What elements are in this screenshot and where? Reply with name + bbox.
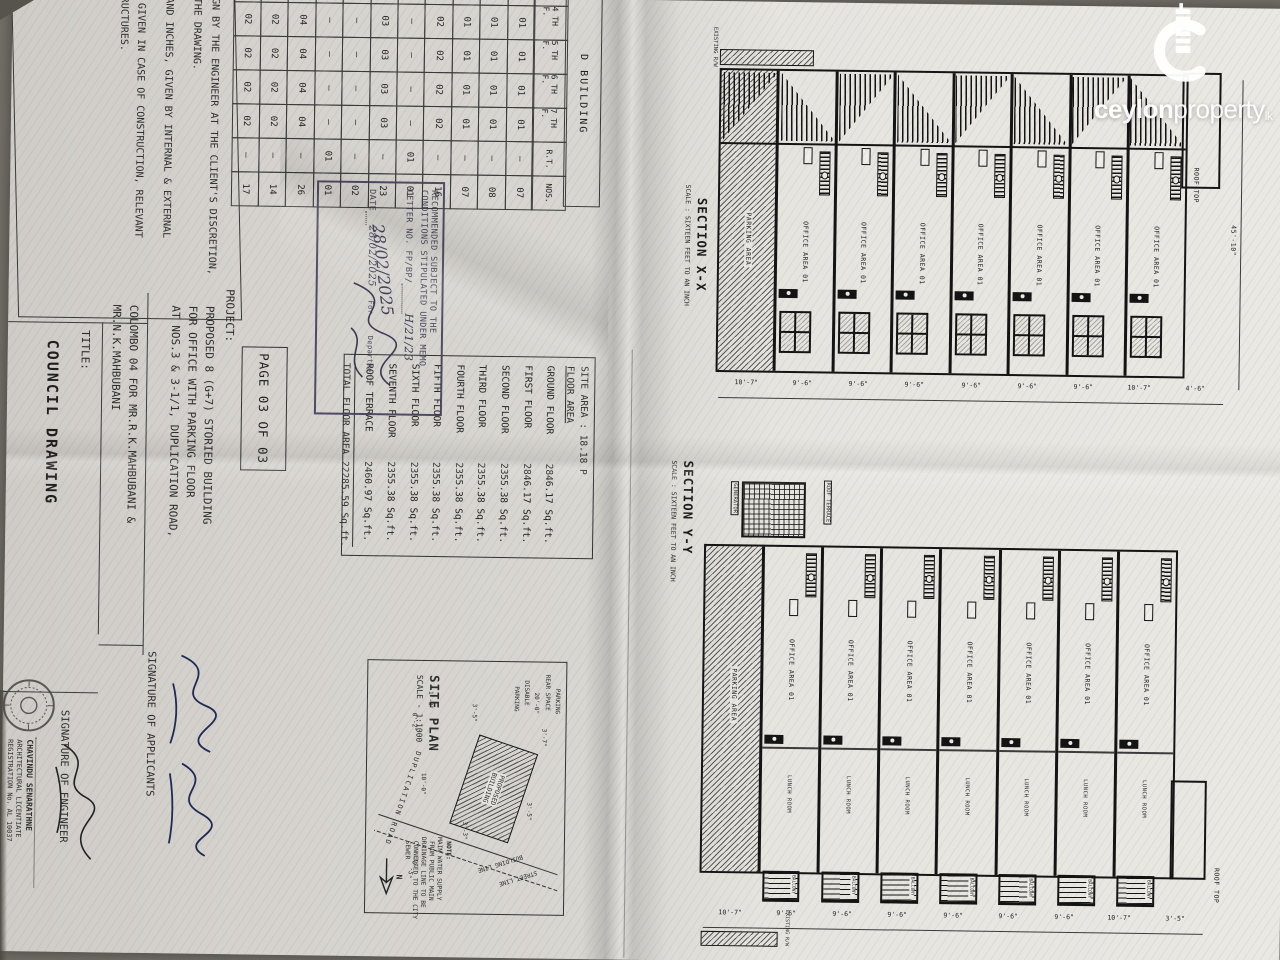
office-area-label: OFFICE AREA 01 (918, 223, 927, 285)
table-cell: 01 (478, 73, 507, 108)
louver-window-icon (865, 554, 877, 598)
note-line: N THE DRAWING. (191, 0, 203, 70)
louver-window-icon (806, 553, 818, 597)
dim-label: 9'-6" (791, 355, 814, 411)
parking-floor-band: PARKING AREA (702, 546, 763, 872)
disable-label: DISABLE (523, 680, 530, 705)
office-area-label: OFFICE AREA 01 (1152, 226, 1161, 288)
table-cell: 01 (505, 107, 534, 142)
table-cell: 2355.38 Sq.ft. (384, 461, 396, 547)
engineer-signature-icon (47, 737, 105, 868)
date-label: DATE (367, 189, 377, 211)
office-area-label: OFFICE AREA 01 (965, 641, 974, 703)
note-line: DRAINAGE LINE TO BE (419, 837, 427, 908)
table-cell: 03 (368, 105, 397, 140)
table-cell: – (368, 139, 397, 174)
table-cell: – (314, 104, 343, 139)
table-cell: 6 TH F. (532, 73, 567, 108)
dim-label: 9'-6" (942, 887, 965, 943)
existing-wall (701, 931, 778, 947)
table-cell: 01 (451, 38, 480, 73)
table-row: 0303030303–23 (367, 0, 398, 208)
section-xx-title: SECTION X-X (694, 198, 710, 292)
dim-label: 9'-6" (886, 887, 909, 943)
dim-label: 9'-6" (847, 356, 870, 412)
balcony-label: BALCONY (1145, 879, 1150, 900)
table-cell: – (396, 71, 425, 106)
office-floor-band: OFFICE AREA 01 LUNCH ROOM BALCONY (1112, 552, 1176, 878)
drawing-sheet: 45'-10" ROOF TOP OFFICE AREA 01 (0, 0, 1280, 960)
louver-window-icon (1170, 156, 1182, 200)
partition-wall (1058, 751, 1114, 754)
table-cell: 04 (286, 104, 315, 139)
window-icon (896, 312, 929, 354)
section-yy-building: OFFICE AREA 01 LUNCH ROOM BALCONY OFFICE… (700, 544, 1179, 880)
louver-window-icon (1160, 558, 1172, 602)
table-cell: 2846.17 Sq.ft. (520, 463, 532, 549)
table-cell: 01 (506, 39, 535, 74)
table-cell: – (258, 138, 287, 173)
table-cell: 03 (370, 3, 399, 38)
table-cell: 07 (450, 174, 479, 209)
table-cell: 2355.38 Sq.ft. (474, 463, 486, 549)
note-line: MAIN WATER SUPPLY (435, 837, 443, 900)
table-row: 3 RD F.4 TH F.5 TH F.6 TH F.7 TH F.R.T.N… (531, 0, 568, 211)
door-icon (1130, 294, 1149, 303)
window-icon (779, 311, 812, 353)
dim-label: 9'-6" (1053, 889, 1076, 945)
engineer-signature-label: SIGNATURE OF ENGINEER (57, 710, 71, 843)
office-area-label: OFFICE AREA 01 (976, 224, 985, 286)
stamp-signature-icon (332, 273, 414, 394)
table-cell: – (423, 140, 452, 175)
door-icon (883, 736, 902, 745)
door-icon (896, 290, 915, 299)
dim-label: 9'-6" (997, 888, 1020, 944)
table-cell: 01 (452, 4, 481, 39)
building-table-header: 3 RD F.4 TH F.5 TH F.6 TH F.7 TH F.R.T.N… (531, 0, 568, 211)
table-cell: 2355.38 Sq.ft. (429, 462, 441, 548)
parking-area-label: PARKING AREA (744, 210, 753, 267)
window-icon (1013, 314, 1046, 356)
door-icon (779, 289, 798, 298)
floor-bands: OFFICE AREA 01 LUNCH ROOM BALCONY OFFICE… (702, 546, 1176, 878)
dim-label: 10'-7" (1108, 890, 1131, 946)
balcony-label: BALCONY (968, 877, 973, 898)
dim-label: 10'-7" (735, 354, 758, 410)
engineer-name: CHAVINDU SENARATHNE (24, 739, 34, 831)
building-table-title: D BUILDING (577, 0, 590, 134)
applicants-signature-label: SIGNATURE OF APPLICANTS (144, 651, 158, 797)
page-strip: PAGE 03 OF 03 (240, 346, 288, 471)
office-floor-band: OFFICE AREA 01 LUNCH ROOM BALCONY (817, 547, 881, 873)
lunch-room-label: LUNCH ROOM (1081, 779, 1088, 817)
table-cell: – (341, 139, 370, 174)
floor-level-tag (1037, 150, 1046, 167)
floor-level-tag (789, 599, 798, 616)
table-cell: 26 (285, 172, 314, 207)
roof-bulkhead (1169, 780, 1206, 879)
table-cell: 2355.38 Sq.ft. (497, 463, 509, 549)
lunch-room-label: LUNCH ROOM (1140, 780, 1147, 818)
floor-area-heading: FLOOR AREA (562, 366, 576, 550)
generator-label: GENERATOR (731, 481, 739, 515)
floor-level-tag (1085, 603, 1094, 620)
engineer-registration: REGISTRATION No. AL 10037 (5, 739, 14, 841)
office-area-label: OFFICE AREA 01 (801, 221, 810, 283)
dim-label: 4'-6" (1184, 360, 1207, 416)
table-cell: 02 (259, 70, 288, 105)
office-area-label: OFFICE AREA 01 (846, 640, 855, 702)
door-icon (1072, 293, 1091, 302)
louver-window-icon (1111, 155, 1123, 199)
divider (98, 322, 103, 634)
table-row: 0202020202–16 (422, 0, 453, 209)
louver-window-icon (924, 555, 936, 599)
office-floor-band: OFFICE AREA 01 LUNCH ROOM BALCONY (935, 549, 999, 875)
lunch-room-label: LUNCH ROOM (963, 777, 970, 815)
table-cell: 02 (233, 1, 262, 36)
note-line: SEWER (404, 841, 411, 860)
divider (99, 644, 144, 646)
table-cell: SECOND FLOOR (498, 365, 510, 463)
note-line: FROM PUBLIC MAIN (427, 841, 435, 901)
table-cell: 04 (287, 70, 316, 105)
stair-flight-icon (721, 70, 780, 143)
yy-dimension-column: 3'-5" 10'-7" 9'-6" 9'-6" 9'-6" 9'-6" 9'-… (703, 901, 1203, 930)
table-cell: 2846.17 Sq.ft. (542, 464, 554, 550)
partition-wall (881, 748, 937, 751)
dim: 3'-7" (540, 729, 547, 747)
disable-parking-dim: 20'-0" (533, 692, 540, 714)
window-icon (838, 312, 871, 354)
xx-dimension-column: 4'-6" 10'-7" 9'-6" 9'-6" 9'-6" 9'-6" 9'-… (718, 371, 1223, 400)
floor-level-tag (862, 148, 871, 165)
project-line: MR.N.K.MAHBUBANI (109, 305, 123, 411)
table-cell: – (286, 138, 315, 173)
floor-level-tag (1096, 151, 1105, 168)
table-cell: – (396, 105, 425, 140)
table-cell: 02 (424, 38, 453, 73)
floor-level-tag (967, 601, 976, 618)
divider (623, 350, 632, 958)
table-cell: 08 (477, 175, 506, 210)
table-cell: FIRST FLOOR (521, 365, 533, 463)
floor-level-tag (1144, 604, 1153, 621)
floor-level-tag (1026, 602, 1035, 619)
partition-wall (1117, 752, 1173, 755)
table-cell: NOS. (531, 175, 566, 210)
approval-stamp: RECOMMENDED SUBJECT TO THE CONDITIONS ST… (314, 180, 445, 416)
letter-no-label: LETTER NO. FP/BP/ (403, 190, 414, 284)
project-line: AT NOS.3 & 3-1/1, DUPLICATION ROAD, (166, 305, 182, 537)
lunch-room-label: LUNCH ROOM (786, 775, 793, 813)
table-cell: 2460.97 Sq.ft. (361, 461, 373, 547)
stair-flight-icon (953, 73, 1012, 146)
logo-building-icon (1144, 2, 1222, 92)
table-row: FIRST FLOOR2846.17 Sq.ft. (514, 365, 539, 549)
office-floor-band: OFFICE AREA 01 LUNCH ROOM BALCONY (994, 550, 1058, 876)
table-row: SECOND FLOOR2355.38 Sq.ft. (491, 365, 516, 549)
louver-window-icon (877, 152, 889, 196)
dotted-line (33, 737, 42, 887)
table-cell: 01 (479, 5, 508, 40)
door-icon (764, 735, 783, 744)
balcony-label: BALCONY (909, 876, 914, 897)
floor-level-tag (979, 150, 988, 167)
table-cell: 01 (313, 138, 342, 173)
table-cell: 02 (259, 104, 288, 139)
table-row: 0101010101–07 (504, 0, 535, 210)
title-label: TITLE: (78, 330, 92, 370)
building-table-title-strip: D BUILDING (563, 0, 603, 207)
table-cell: – (397, 37, 426, 72)
table-row: 0101010101–08 (477, 0, 508, 210)
lunch-room-label: LUNCH ROOM (845, 776, 852, 814)
partition-wall (999, 750, 1055, 753)
table-cell: 7 TH F. (532, 107, 567, 142)
office-area-label: OFFICE AREA 01 (905, 641, 914, 703)
note-line: STRUCTURES. (118, 0, 130, 51)
overall-height-dim: 45'-10" (1229, 225, 1237, 256)
table-row: –––––0101 (395, 0, 426, 209)
door-icon (955, 291, 974, 300)
table-cell: 5 TH F. (533, 39, 568, 74)
office-area-label: OFFICE AREA 01 (1142, 644, 1151, 706)
office-area-label: OFFICE AREA 01 (1093, 225, 1102, 287)
office-floor-band: OFFICE AREA 01 LUNCH ROOM BALCONY (876, 548, 940, 874)
louver-window-icon (1042, 557, 1054, 601)
balcony-label: BALCONY (1086, 878, 1091, 899)
table-cell: THIRD FLOOR (476, 365, 488, 463)
table-cell: – (397, 3, 426, 38)
door-icon (942, 737, 961, 746)
parking-label: PARKING (554, 689, 561, 714)
floor-level-tag (1154, 152, 1163, 169)
stair-flight-icon (837, 72, 896, 145)
table-row: 0101010101–07 (450, 0, 481, 210)
existing-wall (720, 49, 814, 66)
building-table-rows: 0101010101–070101010101–080101010101–070… (230, 0, 535, 210)
office-area-label: OFFICE AREA 01 (1035, 224, 1044, 286)
window-icon (1130, 316, 1163, 358)
table-cell: 2355.38 Sq.ft. (407, 462, 419, 548)
stair-flight-icon (895, 72, 954, 145)
note-line: CONNECTED TO THE CITY (411, 841, 419, 919)
lunch-room-label: LUNCH ROOM (1022, 778, 1029, 816)
office-floor-band: OFFICE AREA 01 LUNCH ROOM BALCONY (758, 547, 822, 873)
table-cell: 01 (451, 106, 480, 141)
existing-rw-label: EXISTING R/W (784, 910, 791, 946)
project-label: PROJECT: (223, 289, 237, 342)
total-value: 22285.59 Sq.ft. (338, 461, 350, 547)
door-icon (838, 290, 857, 299)
partition-wall (762, 747, 818, 750)
site-area-line: SITE AREA : 18.18 P (576, 366, 590, 550)
table-row: FOURTH FLOOR2355.38 Sq.ft. (446, 364, 471, 548)
dim-label: 9'-6" (959, 357, 982, 413)
section-xx-scale: SCALE : SIXTEEN FEET TO AN INCH (682, 185, 692, 306)
table-cell: – (342, 37, 371, 72)
table-cell: 01 (479, 39, 508, 74)
project-line: FOR OFFICE WITH PARKING FLOOR (184, 306, 200, 498)
louver-window-icon (936, 153, 948, 197)
logo-brand-bold: ceylon (1094, 94, 1173, 124)
table-cell: 01 (478, 107, 507, 142)
disable-parking-label: PARKING (513, 686, 520, 711)
dim-label: 9'-6" (1072, 359, 1095, 415)
table-cell: 2355.38 Sq.ft. (452, 462, 464, 548)
table-row: –––––0101 (313, 0, 344, 208)
table-cell: – (314, 70, 343, 105)
divider (143, 293, 149, 655)
table-cell: 02 (260, 36, 289, 71)
section-yy-drawing: ROOF TOP OFFICE AREA 01 LUNCH ROOM BALCO… (652, 448, 1280, 960)
dim-label: 10'-7" (1128, 360, 1151, 416)
louver-window-icon (983, 556, 995, 600)
floor-level-tag (848, 600, 857, 617)
section-yy-scale: SCALE : SIXTEEN FEET TO AN INCH (669, 460, 679, 581)
logo-brand-light: property (1173, 94, 1264, 124)
engineer-title: ARCHITECTURAL LICENTIATE (14, 739, 23, 837)
table-cell: R.T. (531, 141, 566, 176)
photo-of-council-drawing: 45'-10" ROOF TOP OFFICE AREA 01 (0, 0, 1280, 960)
window-icon (1072, 315, 1105, 357)
site-plan: SITE PLAN SCALE - 1:1000 PROPOSED BUILDI… (364, 659, 568, 916)
stair-flight-icon (1011, 74, 1070, 147)
table-cell: – (341, 71, 370, 106)
dim: 1'-0" (427, 691, 434, 709)
partition-wall (940, 749, 996, 752)
balcony-label: BALCONY (1027, 877, 1032, 898)
section-yy-title: SECTION Y-Y (680, 460, 696, 554)
partition-wall (822, 747, 878, 750)
table-cell: 04 (287, 36, 316, 71)
table-cell: 14 (258, 172, 287, 207)
table-row: THIRD FLOOR2355.38 Sq.ft. (469, 365, 494, 549)
table-cell: 01 (395, 139, 424, 174)
office-area-label: OFFICE AREA 01 (1083, 643, 1092, 705)
window-icon (955, 313, 988, 355)
table-cell: 01 (506, 73, 535, 108)
door-icon (1001, 738, 1020, 747)
door-icon (1060, 739, 1079, 748)
note-heading: NOTE: (445, 841, 452, 860)
title-value: COUNCIL DRAWING (42, 340, 62, 506)
table-cell: 02 (424, 72, 453, 107)
table-cell: 02 (260, 2, 289, 37)
stair-flight-icon (779, 71, 838, 144)
dim-label: 3'-5" (1164, 890, 1187, 946)
louver-window-icon (819, 151, 831, 195)
project-line: PROPOSED 8 (G+7) STORIED BUILDING (200, 306, 216, 525)
dim: 0'-2" (410, 713, 417, 731)
table-cell: – (315, 2, 344, 37)
generator-room-trellis (741, 481, 806, 538)
table-cell: – (477, 141, 506, 176)
roof-terrace-label: ROOF TERRACE (823, 480, 832, 524)
table-cell: – (450, 140, 479, 175)
watermark-logo: ceylonpropertylk (1092, 2, 1278, 128)
table-row: 0202020202–14 (258, 0, 289, 207)
table-cell: – (505, 141, 534, 176)
dim-label: 9'-6" (830, 886, 853, 942)
floor-level-tag (920, 149, 929, 166)
site-plan-title: SITE PLAN (426, 675, 442, 752)
table-cell: 02 (423, 106, 452, 141)
table-cell: 01 (507, 5, 536, 40)
floor-level-tag (908, 601, 917, 618)
table-cell: – (342, 3, 371, 38)
table-cell: GROUND FLOOR (543, 366, 555, 464)
floor-level-tag (803, 147, 812, 164)
office-floor-band: OFFICE AREA 01 LUNCH ROOM BALCONY (1053, 551, 1117, 877)
office-area-label: OFFICE AREA 01 (1024, 642, 1033, 704)
office-area-label: OFFICE AREA 01 (787, 639, 796, 701)
table-cell: 04 (288, 2, 317, 37)
door-icon (1119, 740, 1138, 749)
louver-window-icon (1053, 155, 1065, 199)
dim: 10'-0" (420, 773, 427, 795)
louver-window-icon (1101, 557, 1113, 601)
dim: 3'-3" (461, 821, 468, 839)
page-number: PAGE 03 OF 03 (256, 353, 273, 464)
table-cell: 03 (369, 71, 398, 106)
lunch-room-label: LUNCH ROOM (904, 777, 911, 815)
table-cell: – (315, 36, 344, 71)
existing-rw-label: EXISTING R/W (712, 27, 719, 67)
table-row: ––––––02 (340, 0, 371, 208)
logo-tld: lk (1265, 109, 1273, 123)
office-area-label: OFFICE AREA 01 (859, 222, 868, 284)
logo-wordmark: ceylonpropertylk (1094, 94, 1272, 125)
site-plan-scale: SCALE - 1:1000 (414, 675, 424, 743)
table-row: 0404040404–26 (285, 0, 316, 207)
table-cell: 01 (451, 72, 480, 107)
door-icon (1013, 292, 1032, 301)
roof-top-label: ROOF TOP (1212, 868, 1220, 903)
rear-space-label: REAR SPACE (544, 675, 552, 711)
dim: 3'-5" (525, 802, 532, 820)
dim-label: 9'-6" (1016, 358, 1039, 414)
project-line: COLOMBO 04 FOR MR.R.K.MAHBUBANI & (124, 305, 140, 524)
applicants-signature-icon (159, 643, 232, 864)
table-cell: FOURTH FLOOR (453, 364, 465, 462)
north-label: N (394, 875, 403, 880)
table-cell: 4 TH F. (533, 5, 568, 40)
dim-label: 9'-6" (903, 357, 926, 413)
table-cell: – (341, 105, 370, 140)
parking-area-label: PARKING AREA (730, 666, 739, 723)
door-icon (824, 736, 843, 745)
table-cell: 07 (504, 175, 533, 210)
dim: 3'-5" (471, 704, 478, 722)
louver-window-icon (994, 154, 1006, 198)
engineer-seal-icon (0, 677, 57, 734)
table-row: GROUND FLOOR2846.17 Sq.ft. (536, 365, 561, 549)
table-cell: 03 (369, 37, 398, 72)
table-cell: 02 (425, 4, 454, 39)
